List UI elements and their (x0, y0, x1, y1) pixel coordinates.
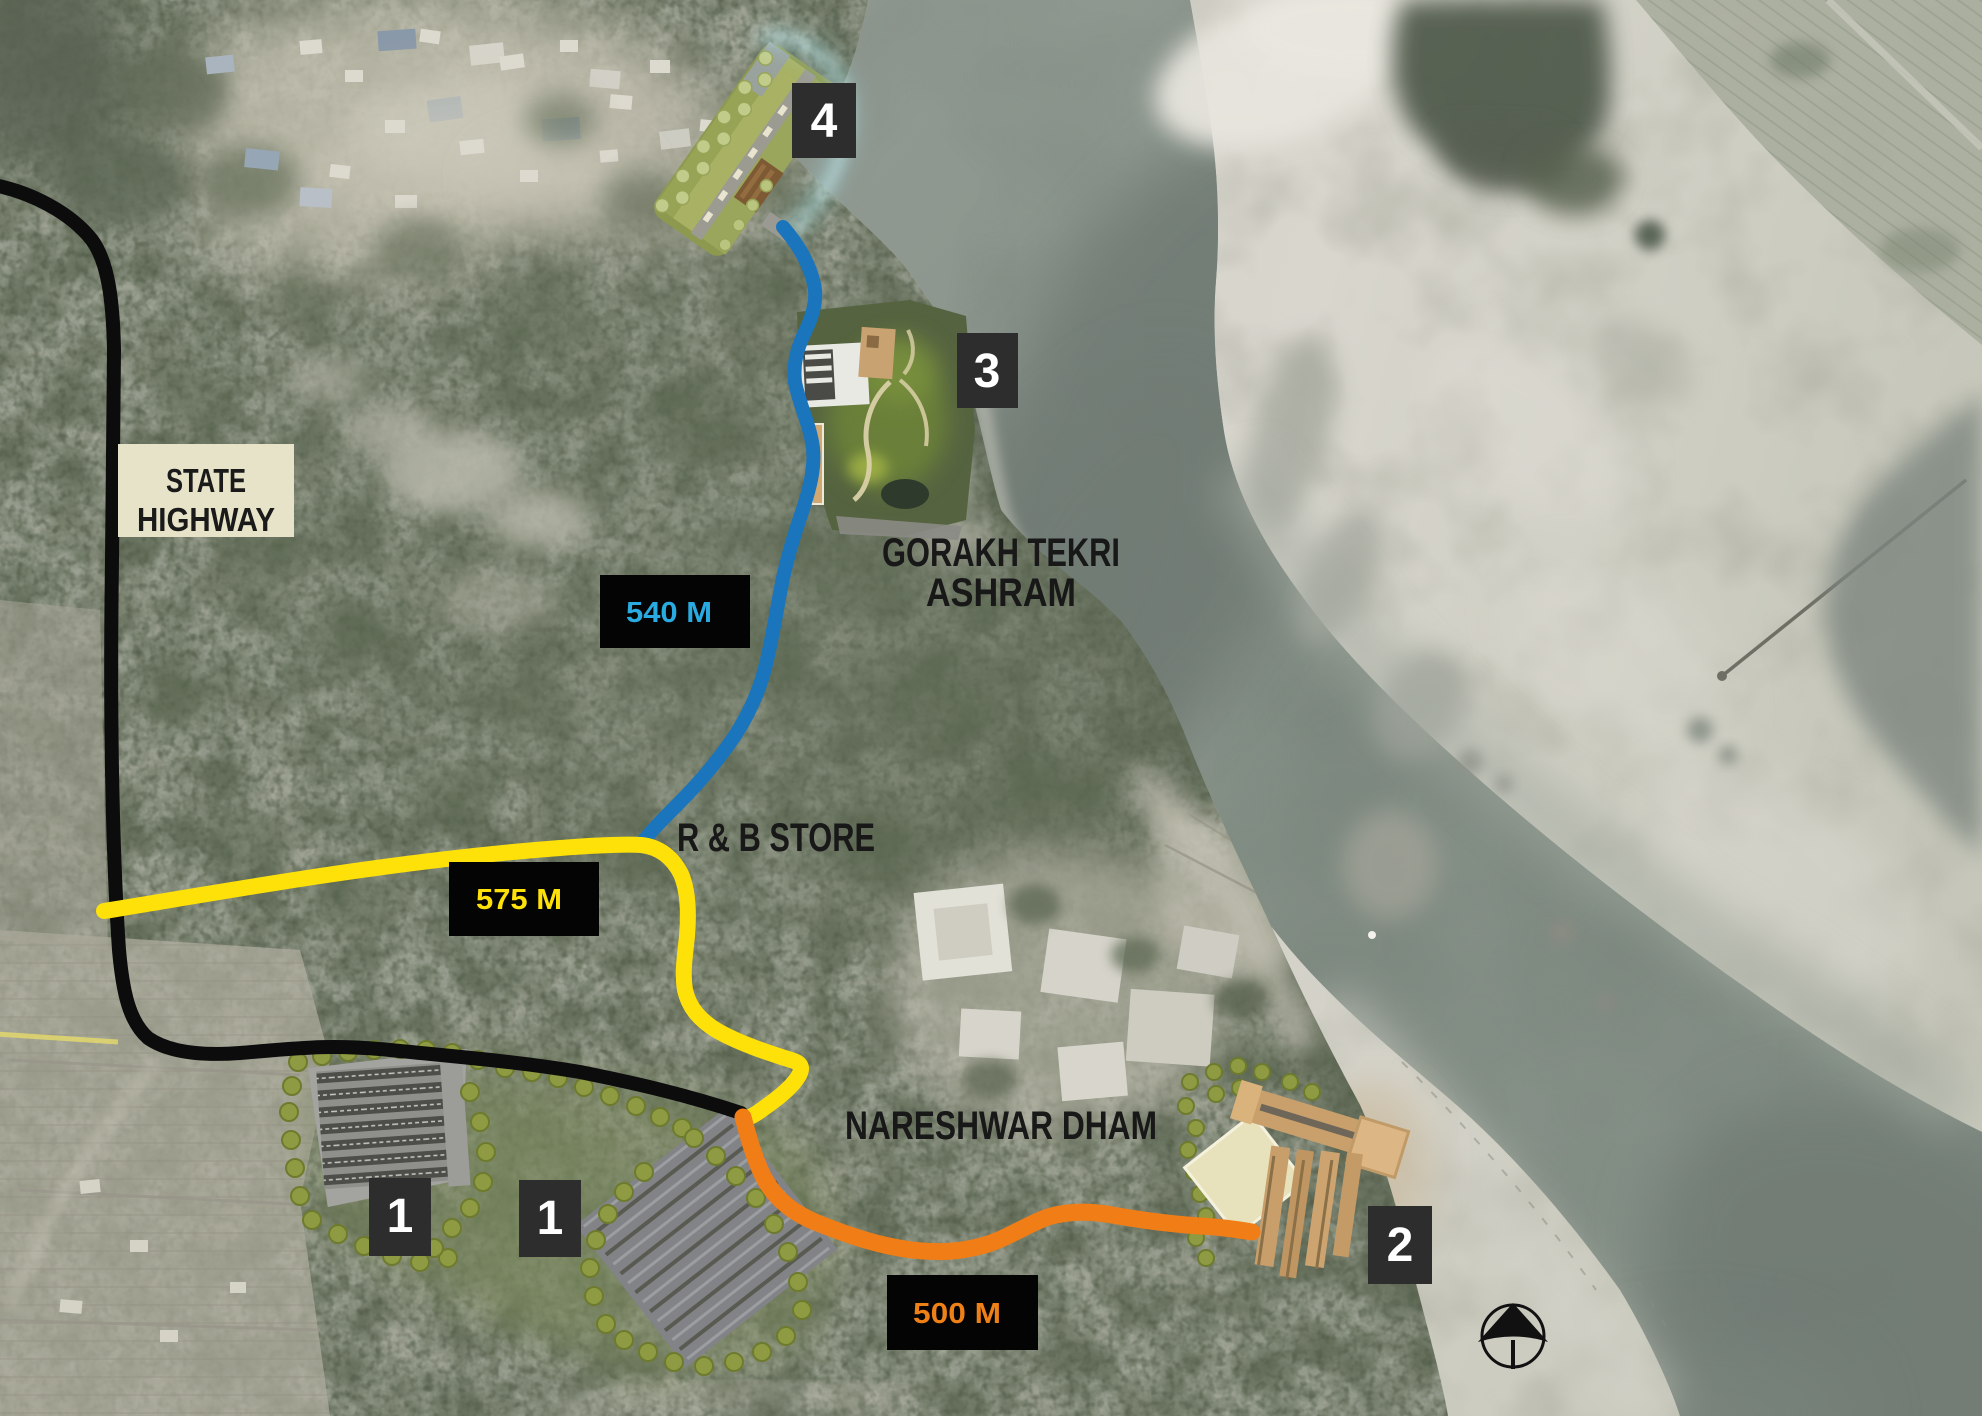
svg-text:R & B STORE: R & B STORE (677, 816, 875, 860)
svg-text:STATE: STATE (166, 462, 246, 499)
svg-text:1: 1 (537, 1192, 564, 1245)
svg-text:2: 2 (1387, 1219, 1414, 1272)
svg-text:1: 1 (387, 1190, 414, 1243)
svg-text:ASHRAM: ASHRAM (926, 571, 1076, 615)
svg-text:500 M: 500 M (913, 1298, 1001, 1330)
svg-text:NARESHWAR DHAM: NARESHWAR DHAM (845, 1104, 1157, 1148)
svg-text:4: 4 (811, 95, 838, 148)
svg-text:HIGHWAY: HIGHWAY (137, 501, 275, 538)
svg-text:3: 3 (974, 345, 1001, 398)
svg-text:540 M: 540 M (626, 597, 712, 629)
svg-text:GORAKH TEKRI: GORAKH TEKRI (882, 531, 1120, 575)
svg-text:575 M: 575 M (476, 884, 562, 916)
